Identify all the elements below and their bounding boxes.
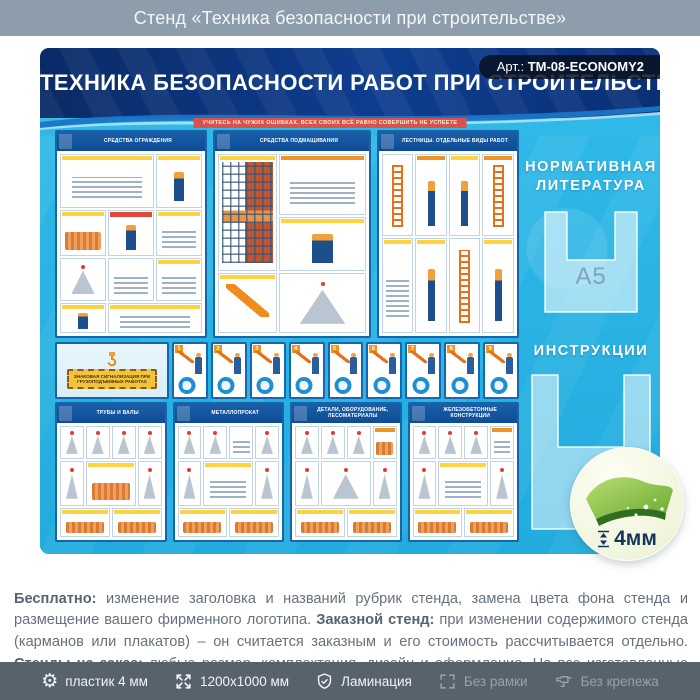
spec-label: Без крепежа xyxy=(581,674,659,689)
poster-title: МЕТАЛЛОПРОКАТ xyxy=(175,404,283,423)
poster-illustration xyxy=(215,151,369,336)
signal-panel: 6 xyxy=(366,342,402,399)
poster-title: ЖЕЛЕЗОБЕТОННЫЕ КОНСТРУКЦИИ xyxy=(410,404,518,423)
poster-illustration xyxy=(379,151,517,336)
spec-no-fasteners: Без крепежа xyxy=(554,672,659,691)
poster-scaffolding: СРЕДСТВА ПОДМАЩИВАНИЯ xyxy=(213,130,371,338)
poster-ladders: ЛЕСТНИЦЫ. ОТДЕЛЬНЫЕ ВИДЫ РАБОТ xyxy=(377,130,519,338)
poster-illustration xyxy=(410,423,518,540)
plastic-sheet-icon xyxy=(576,459,678,537)
poster-title: СРЕДСТВА ОГРАЖДЕНИЯ xyxy=(57,132,205,151)
spec-dimensions: 1200x1000 мм xyxy=(174,672,289,691)
signal-sign-label: ЗНАКОВАЯ СИГНАЛИЗАЦИЯ ПРИ ГРУЗОПОДЪЕМНЫХ… xyxy=(67,369,157,390)
crane-signals-strip: ЗНАКОВАЯ СИГНАЛИЗАЦИЯ ПРИ ГРУЗОПОДЪЕМНЫХ… xyxy=(55,342,519,399)
posters-bottom-row: ТРУБЫ И ВАЛЫ МЕТАЛЛОПРОКАТ ДЕТАЛИ, ОБОРУ… xyxy=(55,402,519,542)
shield-check-icon xyxy=(315,672,334,691)
poster-concrete-structures: ЖЕЛЕЗОБЕТОННЫЕ КОНСТРУКЦИИ xyxy=(408,402,520,542)
gear-icon: ⚙ xyxy=(41,672,58,691)
signal-panel: 1 xyxy=(172,342,208,399)
spec-no-frame: Без рамки xyxy=(438,672,528,691)
poster-pipes-shafts: ТРУБЫ И ВАЛЫ xyxy=(55,402,167,542)
poster-illustration xyxy=(175,423,283,540)
poster-illustration xyxy=(57,151,205,336)
spec-label: Без рамки xyxy=(464,674,528,689)
posters-top-row: СРЕДСТВА ОГРАЖДЕНИЯ СРЕДСТВА ПОДМАЩИВАНИ… xyxy=(55,130,519,338)
signal-sign: ЗНАКОВАЯ СИГНАЛИЗАЦИЯ ПРИ ГРУЗОПОДЪЕМНЫХ… xyxy=(55,342,169,399)
motto-strip: УЧИТЕСЬ НА ЧУЖИХ ОШИБКАХ, ВСЕХ СВОИХ ВСЁ… xyxy=(194,118,467,128)
spec-lamination: Ламинация xyxy=(315,672,412,691)
signal-panel: 5 xyxy=(328,342,364,399)
poster-rolled-metal: МЕТАЛЛОПРОКАТ xyxy=(173,402,285,542)
frame-icon xyxy=(438,672,457,691)
signal-panel: 8 xyxy=(444,342,480,399)
article-badge: Арт.: ТМ-08-ECONOMY2 xyxy=(479,55,660,79)
crane-hook-icon xyxy=(103,352,121,367)
thickness-badge: 4мм xyxy=(570,447,684,561)
poster-illustration xyxy=(57,423,165,540)
thickness-arrows-icon xyxy=(597,530,610,548)
spec-label: 1200x1000 мм xyxy=(200,674,289,689)
posters-area: СРЕДСТВА ОГРАЖДЕНИЯ СРЕДСТВА ПОДМАЩИВАНИ… xyxy=(55,130,519,542)
thickness-value: 4мм xyxy=(614,527,657,551)
spec-label: Ламинация xyxy=(341,674,412,689)
instructions-heading: ИНСТРУКЦИИ xyxy=(522,342,660,361)
literature-heading: НОРМАТИВНАЯ ЛИТЕРАТУРА xyxy=(522,158,660,196)
dimensions-icon xyxy=(174,672,193,691)
poster-parts-equipment: ДЕТАЛИ, ОБОРУДОВАНИЕ, ЛЕСОМАТЕРИАЛЫ xyxy=(290,402,402,542)
poster-title: ДЕТАЛИ, ОБОРУДОВАНИЕ, ЛЕСОМАТЕРИАЛЫ xyxy=(292,404,400,423)
poster-title: ЛЕСТНИЦЫ. ОТДЕЛЬНЫЕ ВИДЫ РАБОТ xyxy=(379,132,517,151)
signal-panel: 9 xyxy=(483,342,519,399)
poster-illustration xyxy=(292,423,400,540)
article-code: ТМ-08-ECONOMY2 xyxy=(528,59,644,74)
a5-pocket: А5 xyxy=(543,210,639,314)
drill-icon xyxy=(554,672,574,691)
footer-spec-bar: ⚙ пластик 4 мм 1200x1000 мм Ламинация Бе… xyxy=(0,662,700,700)
signal-panel: 2 xyxy=(211,342,247,399)
signal-panel: 4 xyxy=(289,342,325,399)
poster-title: ТРУБЫ И ВАЛЫ xyxy=(57,404,165,423)
poster-title: СРЕДСТВА ПОДМАЩИВАНИЯ xyxy=(215,132,369,151)
signal-panel: 7 xyxy=(405,342,441,399)
page-title: Стенд «Техника безопасности при строител… xyxy=(0,0,700,36)
pocket-size-label: А5 xyxy=(543,263,639,291)
stand-product-image: ТЕХНИКА БЕЗОПАСНОСТИ РАБОТ ПРИ СТРОИТЕЛЬ… xyxy=(40,48,660,554)
signal-panel: 3 xyxy=(250,342,286,399)
spec-plastic: ⚙ пластик 4 мм xyxy=(41,672,148,691)
poster-fencing: СРЕДСТВА ОГРАЖДЕНИЯ xyxy=(55,130,207,338)
article-label: Арт.: xyxy=(497,59,524,74)
spec-label: пластик 4 мм xyxy=(65,674,148,689)
